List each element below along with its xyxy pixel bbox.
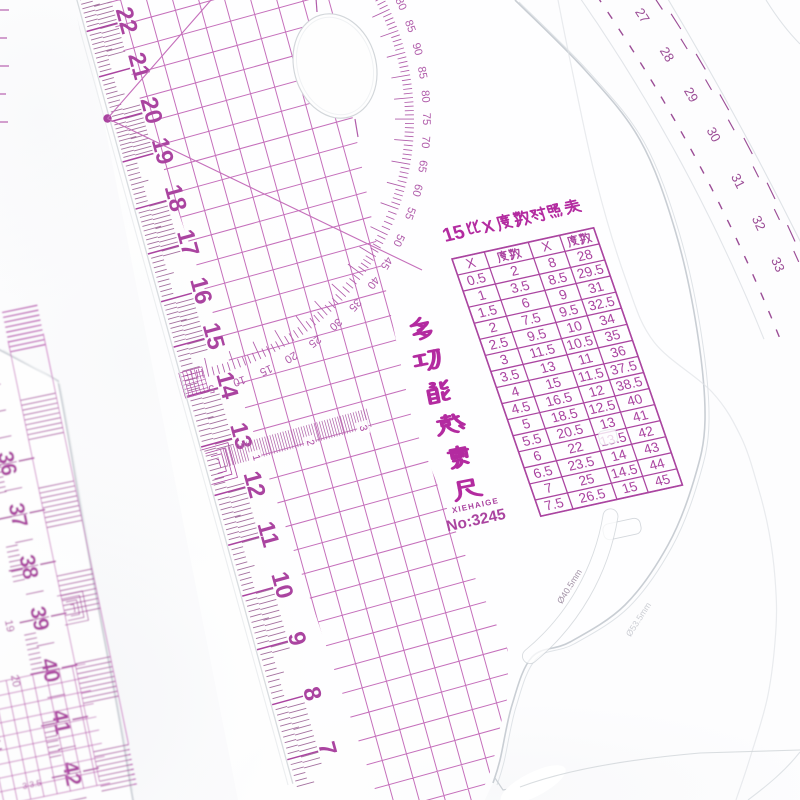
svg-text:70: 70 [419, 135, 432, 148]
svg-text:85: 85 [415, 66, 429, 80]
svg-text:37: 37 [4, 501, 33, 530]
svg-text:19: 19 [2, 619, 16, 633]
svg-text:38: 38 [14, 552, 43, 581]
svg-text:39: 39 [25, 604, 54, 633]
svg-text:80: 80 [419, 90, 432, 103]
svg-text:75: 75 [420, 113, 432, 125]
svg-text:65: 65 [415, 159, 429, 173]
